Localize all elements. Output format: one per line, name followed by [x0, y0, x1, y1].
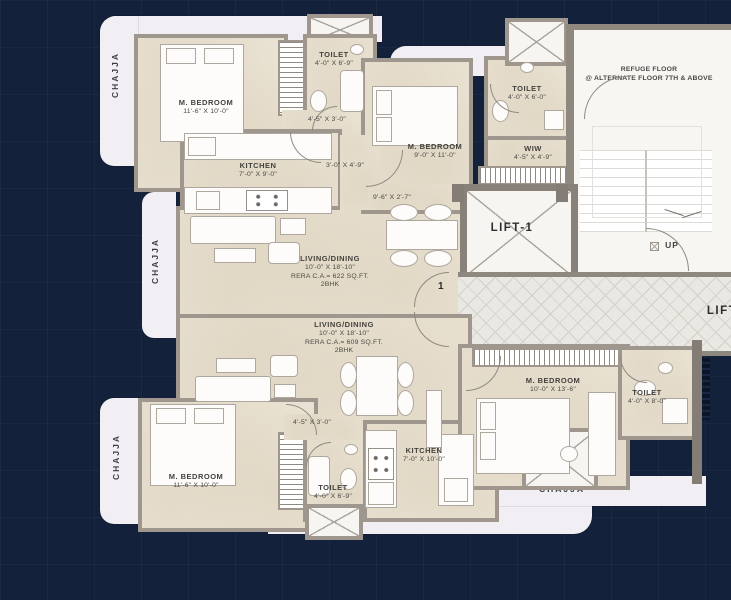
sofa [195, 376, 271, 402]
stair-landing-line [592, 126, 702, 218]
room-label-u2-living: LIVING/DINING 10'-0" X 18'-10" RERA C.A.… [305, 320, 383, 356]
floor-plan: CHAJJA CHAJJA CHAJJA CHAJJA CHAJJA CHAJJ… [0, 0, 731, 600]
dim-label-u1-passage: 4'-5" X 3'-0" [308, 116, 346, 125]
side-table [280, 218, 306, 235]
armchair [270, 355, 298, 377]
u1-louver-window [478, 166, 572, 185]
dining-chair [340, 362, 357, 388]
room-label-u2-bedroom1: M. BEDROOM 11'-6" X 10'-0" [169, 472, 224, 491]
pillow [156, 408, 186, 424]
ottoman [214, 248, 256, 263]
coffee-table [216, 358, 256, 373]
basin [658, 362, 673, 374]
pillow [480, 402, 496, 430]
room-label-u1-toilet2: TOILET 4'-0" X 6'-0" [508, 84, 546, 103]
kitchen-appliance [188, 137, 216, 156]
pillow [480, 432, 496, 460]
basin [520, 62, 534, 73]
dining-chair [390, 204, 418, 221]
sink-icon [196, 191, 220, 210]
dining-chair [397, 390, 414, 416]
stool [560, 446, 578, 462]
sofa [190, 216, 276, 244]
room-label-u1-bedroom1: M. BEDROOM 11'-6" X 10'-0" [179, 98, 234, 117]
dining-chair [340, 390, 357, 416]
fridge-icon [444, 478, 468, 502]
stove-icon [246, 190, 288, 211]
u2-duct-bottom [305, 504, 363, 540]
duct-top-right [505, 18, 568, 66]
pillow [194, 408, 224, 424]
shower [544, 110, 564, 130]
pillow [204, 48, 234, 64]
pillow [376, 117, 392, 142]
wardrobe [588, 392, 616, 476]
dresser [426, 390, 442, 448]
room-label-u1-bedroom2: M. BEDROOM 9'-0" X 11'-0" [408, 142, 463, 161]
wall-pillar [556, 184, 568, 202]
bathtub [340, 70, 364, 112]
dining-table [356, 356, 398, 416]
dining-chair [397, 362, 414, 388]
pillow [166, 48, 196, 64]
dim-label-u1-passage2: 3'-0" X 4'-9" [326, 162, 364, 171]
lift-right-label: LIFT [707, 304, 731, 319]
dim-label-u2-passage: 4'-5" X 3'-0" [293, 419, 331, 428]
room-label-u1-wiw: WIW 4'-5" X 4'-9" [514, 144, 552, 163]
dim-label-u1-entry: 9'-6" X 2'-7" [373, 194, 411, 203]
chajja-label-top-left: CHAJJA [110, 52, 120, 98]
dining-chair [390, 250, 418, 267]
dining-table [386, 220, 458, 250]
side-table [274, 384, 296, 398]
wall-pillar [452, 184, 464, 202]
room-label-u1-kitchen: KITCHEN 7'-0" X 9'-0" [239, 161, 277, 180]
chajja-label-bottom-left: CHAJJA [111, 434, 121, 480]
dining-chair [424, 204, 452, 221]
room-label-u2-kitchen: KITCHEN 7'-0" X 10'-0" [403, 446, 445, 465]
wall-pillar [692, 340, 702, 484]
room-label-u1-toilet1: TOILET 4'-0" X 6'-9" [315, 50, 353, 69]
dining-chair [424, 250, 452, 267]
pillow [376, 90, 392, 115]
chajja-label-mid-left: CHAJJA [150, 238, 160, 284]
room-label-u2-toilet2: TOILET 4'-0" X 8'-0" [628, 388, 666, 407]
basin [344, 444, 358, 455]
room-label-u1-living: LIVING/DINING 10'-0" X 18'-10" RERA C.A.… [291, 254, 369, 290]
room-label-u2-toilet1: TOILET 4'-0" X 6'-9" [314, 483, 352, 502]
stove-icon [368, 448, 394, 480]
room-label-u2-bedroom2: M. BEDROOM 10'-0" X 13'-6" [526, 376, 581, 395]
lift-1-label: LIFT-1 [491, 221, 534, 236]
sink-icon [368, 482, 394, 505]
